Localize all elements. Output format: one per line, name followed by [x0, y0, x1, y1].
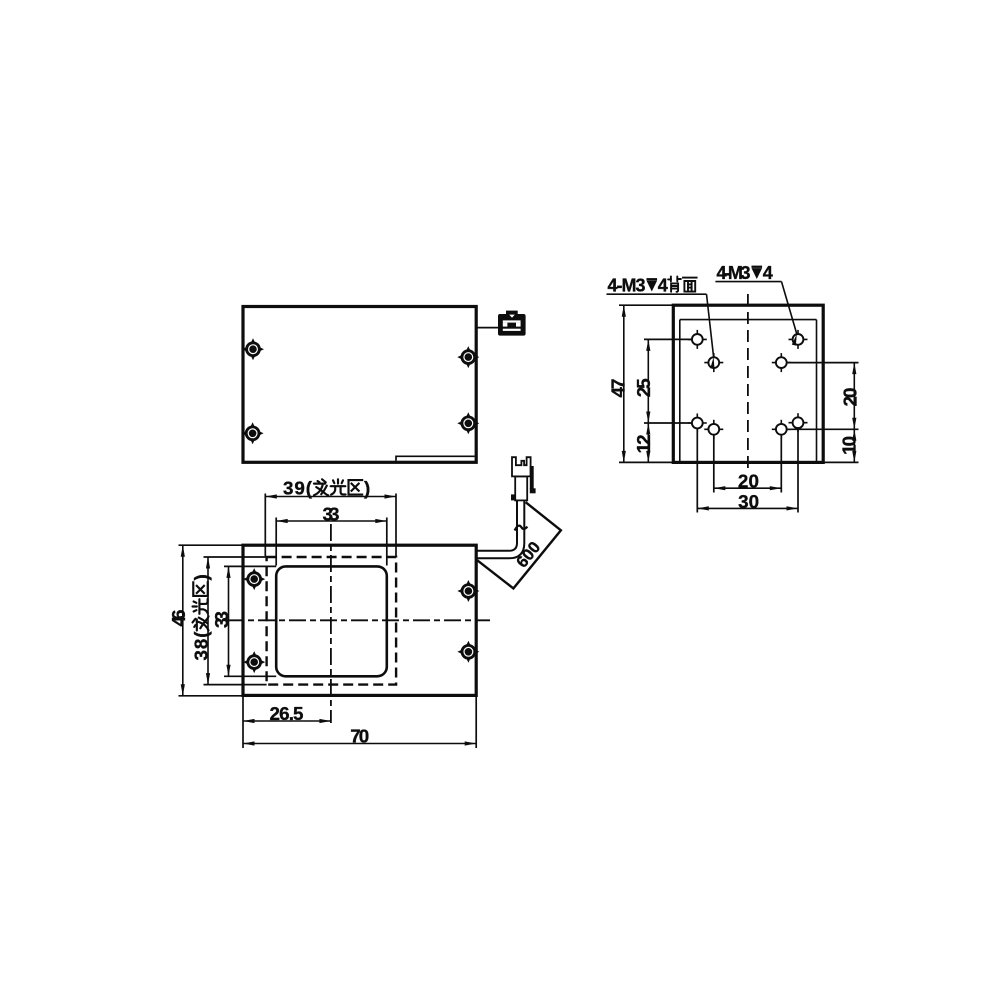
svg-text:): ): [191, 574, 212, 580]
svg-text:25: 25: [633, 378, 654, 397]
svg-text:12: 12: [633, 434, 654, 453]
svg-text:33: 33: [323, 503, 340, 524]
svg-text:4-M3: 4-M3: [717, 263, 751, 283]
svg-text:70: 70: [350, 726, 369, 747]
svg-text:): ): [364, 477, 370, 498]
svg-text:46: 46: [168, 610, 189, 627]
svg-text:39(: 39(: [283, 477, 313, 498]
svg-text:20: 20: [839, 388, 860, 407]
svg-text:38(: 38(: [191, 631, 212, 661]
svg-text:47: 47: [607, 379, 628, 398]
svg-text:4: 4: [658, 276, 668, 296]
svg-text:33: 33: [211, 611, 232, 628]
svg-text:4: 4: [763, 263, 773, 283]
svg-text:26.5: 26.5: [270, 703, 304, 724]
svg-text:30: 30: [738, 491, 759, 512]
svg-text:4-M3: 4-M3: [608, 276, 646, 296]
svg-text:20: 20: [738, 470, 759, 491]
svg-text:10: 10: [839, 436, 860, 455]
